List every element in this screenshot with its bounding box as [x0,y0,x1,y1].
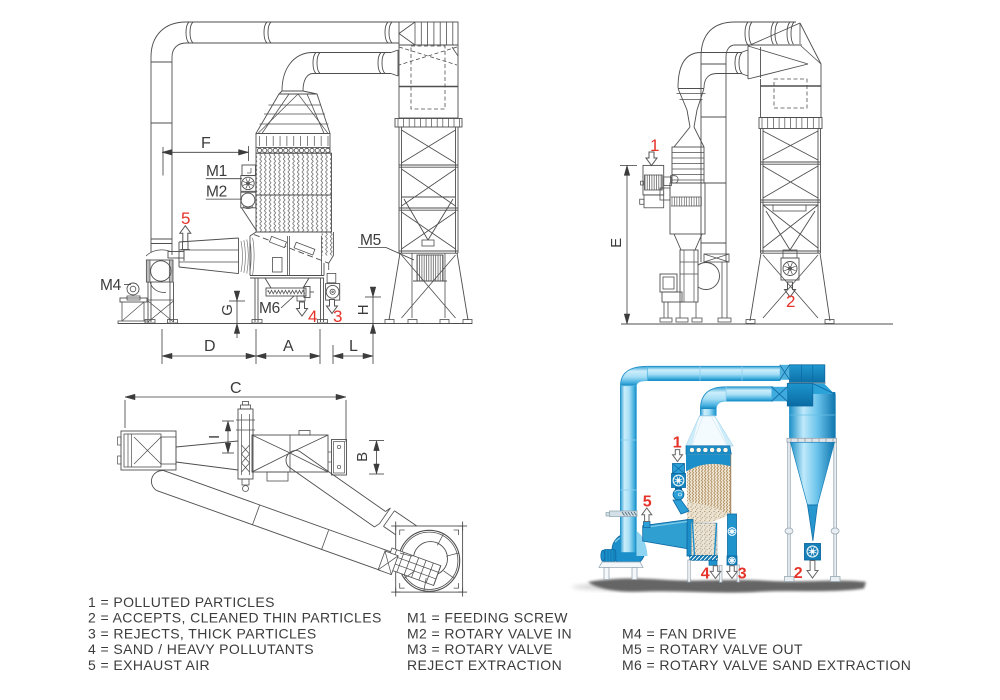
svg-text:2 = ACCEPTS, CLEANED THIN PART: 2 = ACCEPTS, CLEANED THIN PARTICLES [88,610,382,626]
svg-text:3: 3 [738,565,747,582]
svg-text:M1: M1 [206,163,227,180]
svg-text:C: C [230,380,241,397]
svg-text:L: L [349,338,358,355]
svg-text:M6 = ROTARY VALVE SAND EXTRACT: M6 = ROTARY VALVE SAND EXTRACTION [622,657,911,673]
svg-text:REJECT EXTRACTION: REJECT EXTRACTION [407,657,562,673]
svg-text:M6: M6 [259,300,280,317]
svg-text:5: 5 [643,494,652,511]
svg-text:H: H [355,305,372,316]
svg-text:4 = SAND / HEAVY POLLUTANTS: 4 = SAND / HEAVY POLLUTANTS [88,641,314,657]
svg-text:M3 = ROTARY VALVE: M3 = ROTARY VALVE [407,641,553,657]
svg-text:3 = REJECTS, THICK PARTICLES: 3 = REJECTS, THICK PARTICLES [88,625,317,641]
svg-text:1 = POLLUTED PARTICLES: 1 = POLLUTED PARTICLES [88,594,275,610]
svg-text:1: 1 [673,435,682,452]
svg-text:E: E [608,238,625,248]
svg-text:4: 4 [308,307,317,326]
svg-text:M2 = ROTARY VALVE IN: M2 = ROTARY VALVE IN [407,625,572,641]
svg-text:2: 2 [794,565,803,582]
svg-text:5: 5 [181,209,190,228]
svg-text:B: B [354,452,371,462]
svg-text:G: G [219,304,236,315]
svg-text:M5 = ROTARY VALVE OUT: M5 = ROTARY VALVE OUT [622,641,803,657]
svg-text:I: I [206,435,223,439]
svg-text:M5: M5 [360,232,381,249]
svg-text:A: A [283,338,294,355]
svg-text:M4 = FAN DRIVE: M4 = FAN DRIVE [622,625,737,641]
svg-text:M1 = FEEDING SCREW: M1 = FEEDING SCREW [407,610,568,626]
svg-text:3: 3 [333,307,342,326]
svg-text:5 = EXHAUST AIR: 5 = EXHAUST AIR [88,657,210,673]
svg-text:M4: M4 [100,277,122,294]
svg-text:D: D [204,338,215,355]
svg-text:M2: M2 [206,184,227,201]
svg-text:4: 4 [701,565,710,582]
svg-text:F: F [201,135,211,152]
svg-text:2: 2 [786,292,795,311]
